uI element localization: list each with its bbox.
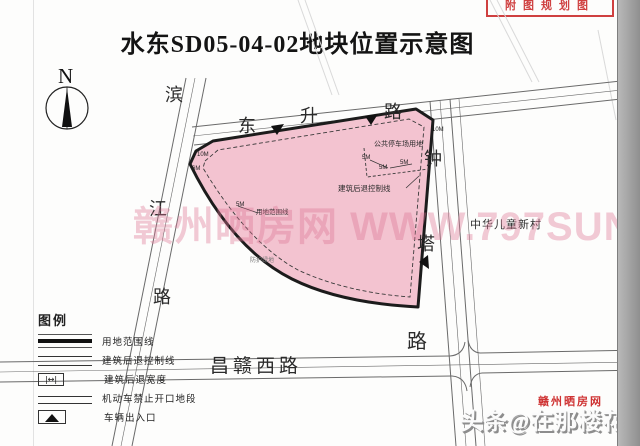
legend-item-label: 车辆出入口 bbox=[104, 410, 157, 424]
binjiang-road-char: 滨 bbox=[165, 86, 183, 104]
no-opening-symbol bbox=[38, 396, 92, 404]
north-arrow bbox=[46, 87, 88, 129]
dimension-label: 6M bbox=[192, 166, 200, 172]
scanned-plan-map: 水东SD05-04-02地块位置示意图 附图规划图 N 滨江路东升路钟塔路昌赣西… bbox=[0, 0, 640, 446]
setback-width-symbol: |↔| bbox=[38, 373, 64, 386]
dimension-label: 5M bbox=[400, 160, 408, 166]
zhongta-road-char: 路 bbox=[407, 332, 427, 352]
binjiang-road-char: 路 bbox=[153, 288, 171, 306]
entrance-symbol bbox=[38, 410, 66, 424]
legend-item-setback-line: 建筑后退控制线 bbox=[38, 354, 197, 366]
dongsheng-road-char: 路 bbox=[384, 103, 402, 121]
dimension-label: 5M bbox=[379, 165, 387, 171]
legend-item-label: 机动车禁止开口地段 bbox=[102, 391, 197, 405]
legend-item-entrance: 车辆出入口 bbox=[38, 411, 197, 423]
parking-area-label: 公共停车场用地 bbox=[374, 141, 423, 148]
legend-item-label: 建筑后退控制线 bbox=[102, 353, 176, 367]
green-buffer-label: 防护绿地 bbox=[250, 258, 274, 264]
changgan-west-road-label: 昌赣西路 bbox=[210, 357, 302, 376]
scan-gray-strip bbox=[617, 0, 640, 446]
dimension-label: 10M bbox=[197, 152, 209, 158]
dongsheng-road-char: 升 bbox=[300, 107, 318, 125]
legend-item-setback-width: |↔|建筑后退宽度 bbox=[38, 373, 197, 385]
legend-item-label: 建筑后退宽度 bbox=[104, 372, 167, 386]
dongsheng-road-char: 东 bbox=[238, 117, 256, 135]
dimension-label: 10M bbox=[432, 127, 444, 133]
legend-item-no-opening: 机动车禁止开口地段 bbox=[38, 392, 197, 404]
boundary-thick-symbol bbox=[38, 334, 92, 348]
dimension-label: 5M bbox=[362, 155, 370, 161]
watermark-center: 赣州晒房网 WWW.797SUN.COM bbox=[133, 194, 640, 252]
setback-control-line-label: 建筑后退控制线 bbox=[338, 185, 391, 193]
legend-title: 图例 bbox=[38, 310, 197, 329]
zhongta-road-char: 钟 bbox=[424, 150, 442, 168]
watermark-author: 头条@在那楼花季节 bbox=[460, 402, 640, 436]
legend-item-boundary-thick: 用地范围线 bbox=[38, 335, 197, 347]
setback-line-symbol bbox=[38, 356, 92, 366]
legend-item-label: 用地范围线 bbox=[102, 334, 155, 348]
legend: 图例 用地范围线建筑后退控制线|↔|建筑后退宽度机动车禁止开口地段车辆出入口 bbox=[38, 310, 197, 430]
